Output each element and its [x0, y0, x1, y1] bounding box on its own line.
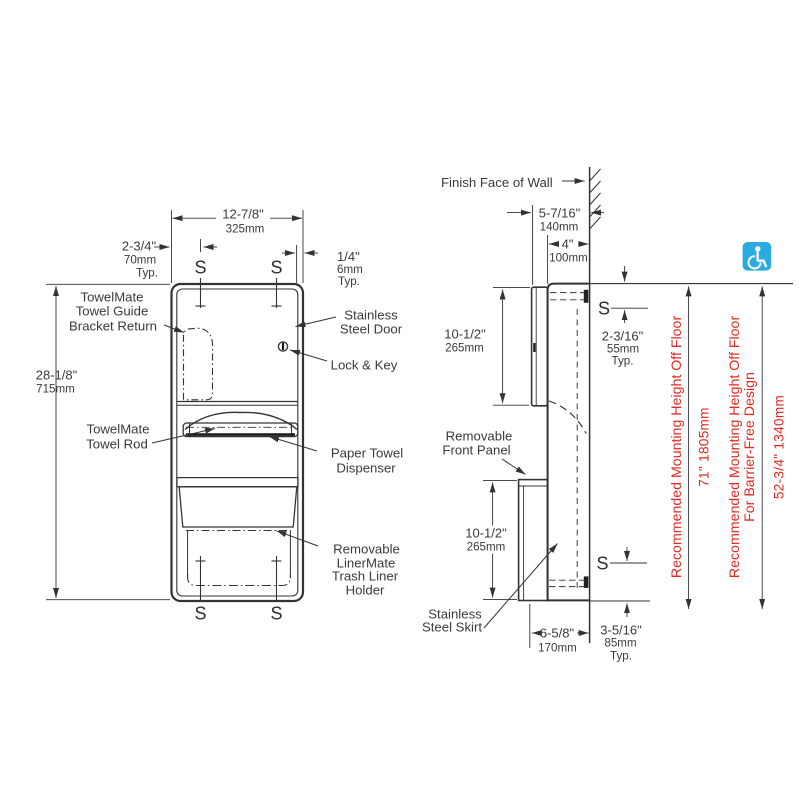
towel-guide-label-2: Towel Guide — [76, 304, 149, 319]
trash-flap — [179, 487, 297, 527]
front-edge-typ: Typ. — [136, 266, 158, 279]
lock-key-label: Lock & Key — [331, 357, 398, 372]
stud-letter: S — [194, 258, 206, 279]
barrier-free-mounting-note-2: For Barrier-Free Design — [742, 372, 758, 522]
wall-label: Finish Face of Wall — [441, 175, 553, 190]
barrier-free-mounting-value: 52-3/4" 1340mm — [771, 395, 786, 499]
body-depth-mm: 100mm — [549, 251, 588, 264]
stud-bottom-inches: 3-5/16" — [600, 622, 641, 637]
skirt-profile — [519, 480, 548, 601]
front-panel-label-2: Front Panel — [442, 442, 510, 457]
stud-bottom-typ: Typ. — [610, 649, 632, 662]
stud-letter: S — [270, 258, 282, 279]
skirt-label-2: Steel Skirt — [422, 620, 482, 635]
mounting-height-note: Recommended Mounting Height Off Floor — [669, 316, 685, 578]
dispenser-label-1: Paper Towel — [331, 446, 403, 461]
stud-letter: S — [270, 604, 282, 625]
dispenser-label-2: Dispenser — [336, 460, 395, 475]
front-height-mm: 715mm — [36, 383, 75, 396]
front-width-inches: 12-7/8" — [222, 207, 263, 222]
skirt-depth-mm: 170mm — [538, 641, 577, 654]
towel-rod-label-1: TowelMate — [86, 421, 149, 436]
towel-rod-label-2: Towel Rod — [86, 436, 148, 451]
upper-panel-inches: 10-1/2" — [444, 326, 485, 341]
liner-holder-bottom — [188, 574, 291, 586]
front-edge-inches: 2-3/4" — [122, 239, 156, 254]
liner-label-4: Holder — [346, 582, 385, 597]
door-label-2: Steel Door — [340, 321, 402, 336]
stud-marks — [196, 278, 282, 600]
depth-mm: 140mm — [540, 220, 579, 233]
side-view-cabinet — [519, 167, 601, 643]
door-label-1: Stainless — [344, 307, 398, 322]
wheelchair-accessible-icon — [743, 242, 772, 271]
lower-panel-mm: 265mm — [466, 540, 507, 553]
front-view-leaders — [152, 317, 336, 546]
stud-letter: S — [596, 553, 608, 574]
front-gap-typ: Typ. — [338, 275, 360, 288]
stud-letter: S — [598, 298, 610, 319]
barrier-free-mounting-note-1: Recommended Mounting Height Off Floor — [727, 316, 743, 578]
stud-letter: S — [194, 604, 206, 625]
front-edge-mm: 70mm — [124, 253, 156, 266]
spec-drawing-page: 12-7/8" 325mm 2-3/4" 70mm Typ. 1/4" 6mm … — [0, 0, 800, 800]
front-view-cabinet — [172, 278, 304, 601]
body-depth-inches: 4" — [562, 237, 574, 252]
stud-top-typ: Typ. — [612, 354, 634, 367]
skirt-depth-inches: 6-5/8" — [540, 625, 574, 640]
wall-hatching — [590, 169, 601, 229]
front-panel-label-1: Removable — [446, 428, 513, 443]
stud-bottom-mm: 85mm — [604, 637, 636, 650]
towel-guide-label-3: Bracket Return — [69, 318, 157, 333]
towel-guide-bracket-outline — [184, 328, 213, 400]
front-height-inches: 28-1/8" — [36, 368, 77, 383]
depth-inches: 5-7/16" — [539, 205, 580, 220]
mounting-height-value: 71" 1805mm — [697, 407, 712, 487]
upper-panel-mm: 265mm — [445, 341, 484, 354]
front-width-mm: 325mm — [226, 223, 265, 236]
towel-guide-label-1: TowelMate — [80, 289, 143, 304]
lower-panel-inches: 10-1/2" — [464, 526, 507, 541]
